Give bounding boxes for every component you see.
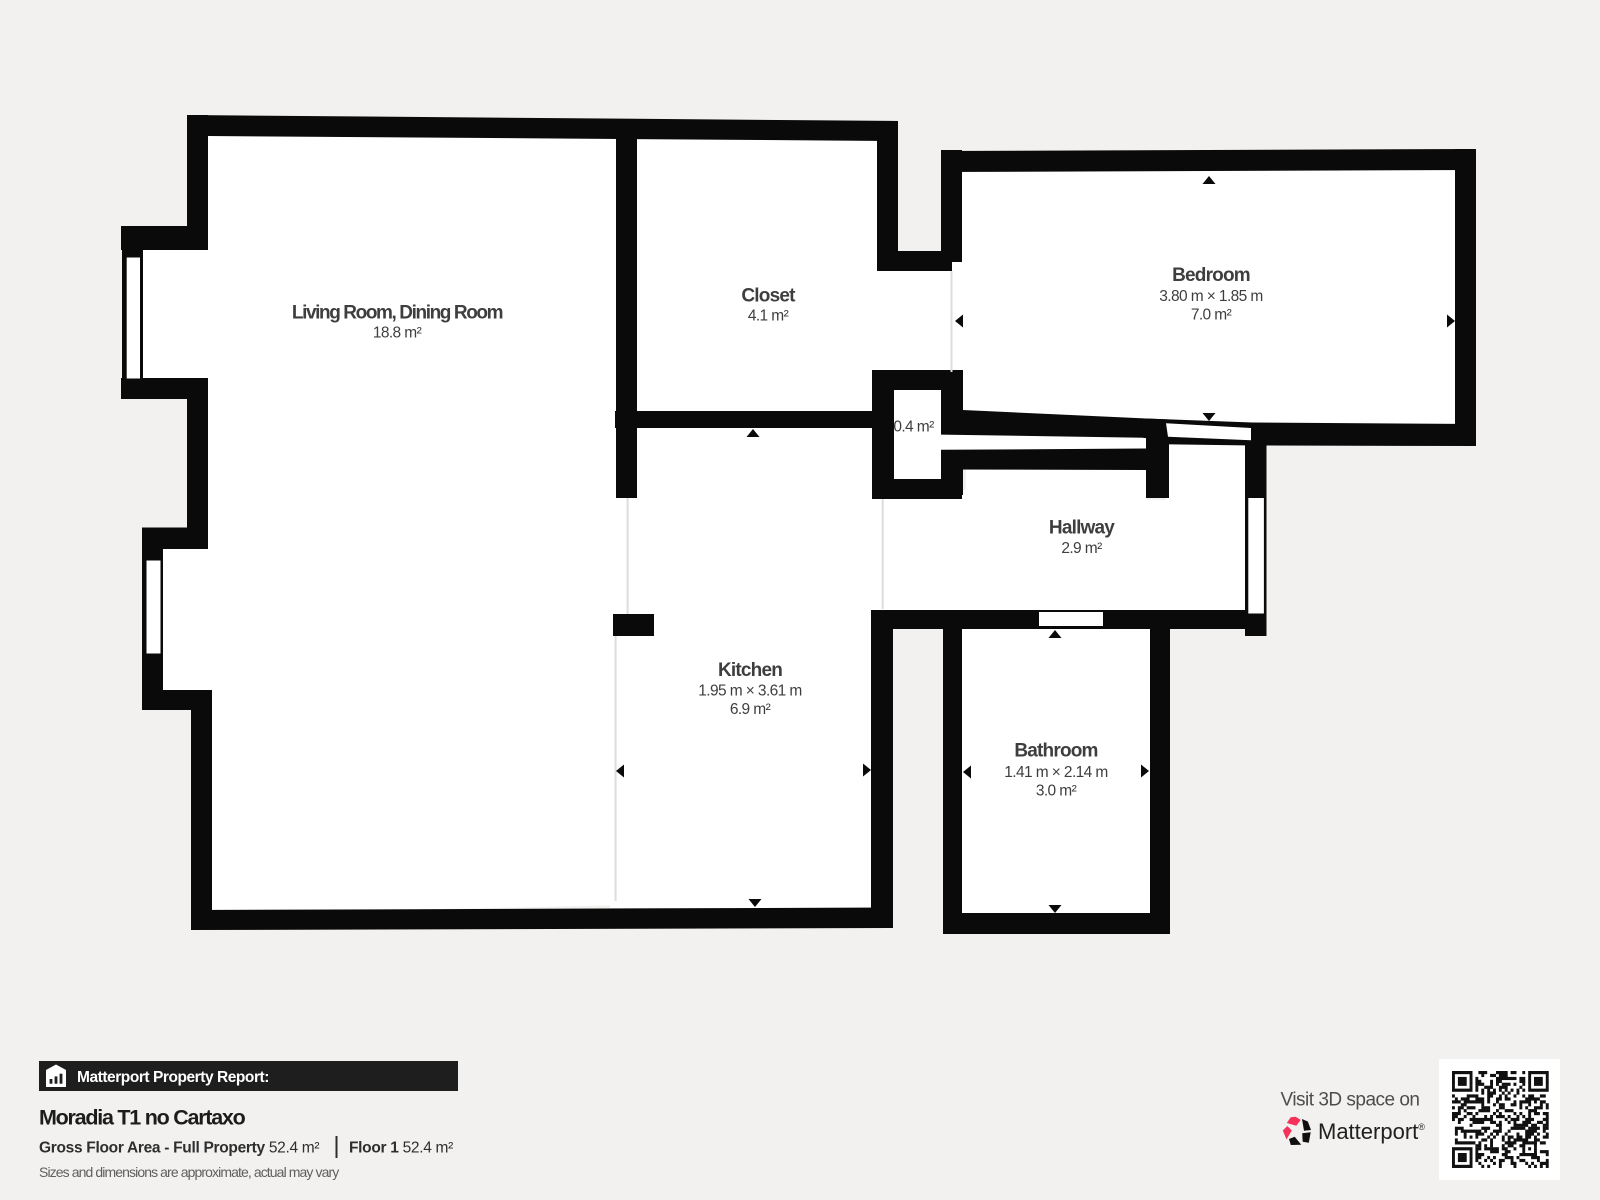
svg-text:3.0 m²: 3.0 m² [1036,783,1077,800]
svg-text:Bathroom: Bathroom [1014,741,1097,762]
svg-text:Hallway: Hallway [1049,518,1115,539]
svg-text:1.41 m × 2.14 m: 1.41 m × 2.14 m [1004,764,1107,781]
svg-text:Closet: Closet [741,286,796,307]
svg-text:Matterport Property Report:: Matterport Property Report: [77,1069,269,1086]
svg-text:2.9 m²: 2.9 m² [1061,540,1102,557]
svg-text:1.95 m × 3.61 m: 1.95 m × 3.61 m [698,683,801,700]
svg-text:3.80 m × 1.85 m: 3.80 m × 1.85 m [1159,288,1262,305]
svg-text:7.0 m²: 7.0 m² [1191,307,1232,324]
svg-text:6.9 m²: 6.9 m² [730,701,771,718]
svg-text:18.8 m²: 18.8 m² [373,325,422,342]
svg-text:Living Room, Dining Room: Living Room, Dining Room [292,303,503,324]
svg-text:Moradia T1 no Cartaxo: Moradia T1 no Cartaxo [39,1106,246,1130]
svg-text:Matterport®: Matterport® [1318,1119,1425,1144]
svg-text:0.4 m²: 0.4 m² [893,419,934,436]
svg-text:Kitchen: Kitchen [718,660,782,681]
svg-text:Sizes and dimensions are appro: Sizes and dimensions are approximate, ac… [39,1164,339,1180]
svg-text:Visit 3D space on: Visit 3D space on [1280,1090,1419,1111]
svg-text:Bedroom: Bedroom [1172,265,1250,286]
svg-text:Gross Floor Area - Full Proper: Gross Floor Area - Full Property 52.4 m² [39,1140,319,1157]
svg-text:4.1 m²: 4.1 m² [748,308,789,325]
svg-text:Floor 1 52.4 m²: Floor 1 52.4 m² [349,1140,453,1157]
